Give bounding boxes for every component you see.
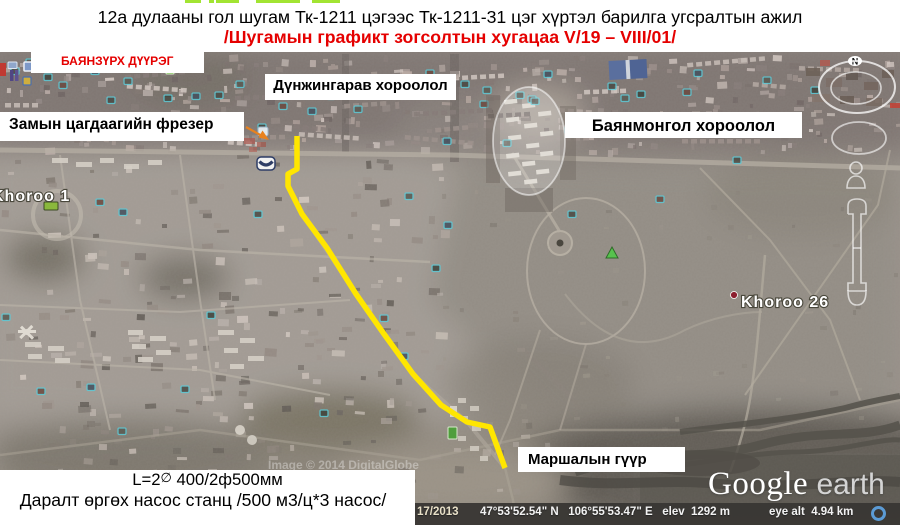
- svg-text:Khoroo 1: Khoroo 1: [0, 188, 70, 205]
- svg-text:Khoroo 26: Khoroo 26: [741, 294, 829, 311]
